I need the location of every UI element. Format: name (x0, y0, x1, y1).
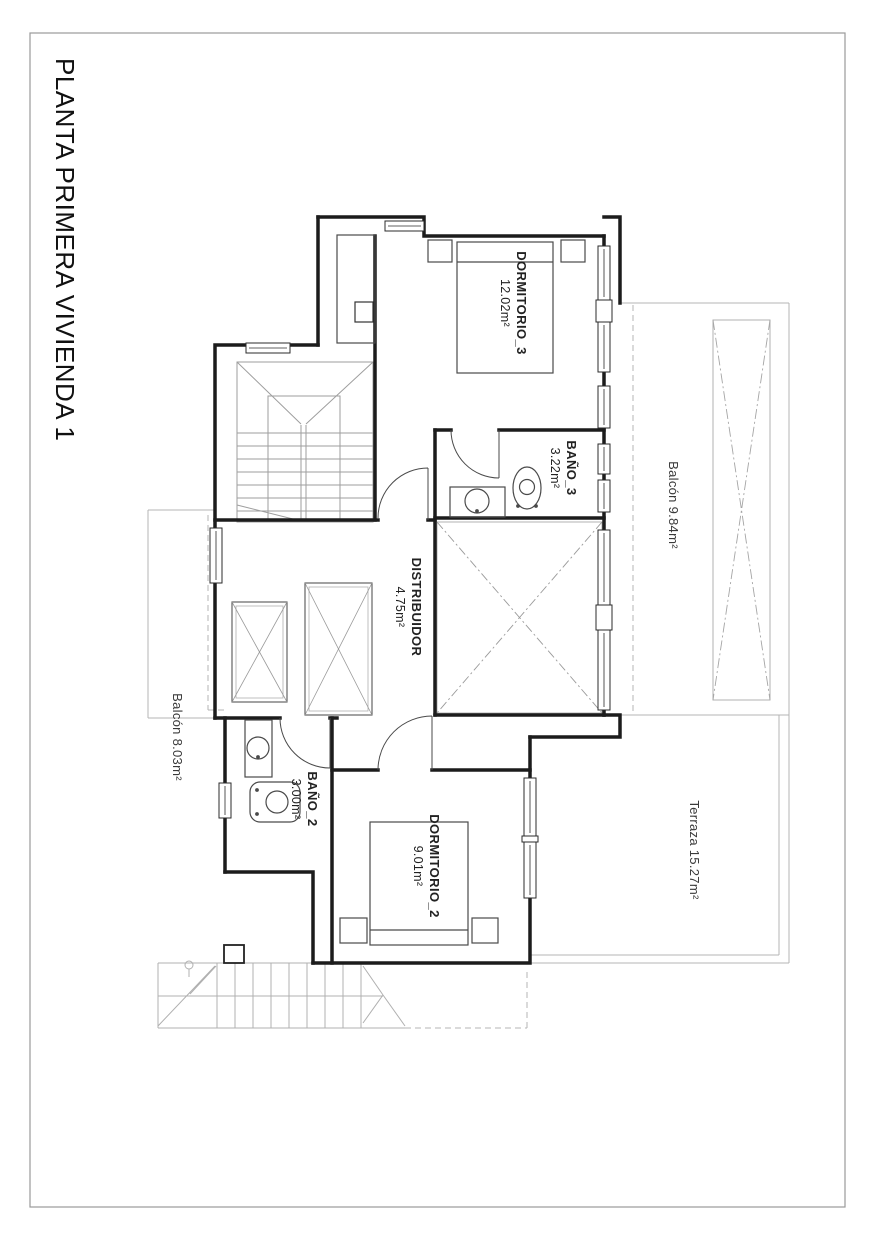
door-group (280, 430, 499, 770)
void-x-marks (437, 522, 602, 713)
label-distribuidor: DISTRIBUIDOR 4.75m² (393, 558, 424, 657)
wall-top (318, 217, 604, 236)
closet-left-x (232, 602, 287, 702)
toilet-bano3-icon (513, 467, 541, 509)
window-mullion-block (596, 300, 612, 322)
skylight-x-marks (713, 320, 770, 700)
interior-stair (237, 362, 373, 522)
room-name: DORMITORIO_2 (427, 814, 442, 918)
nightstand (561, 240, 585, 262)
label-terraza: Terraza 15.27m² (687, 800, 702, 900)
sink-bano2-icon (245, 720, 272, 777)
door-dormitorio3 (378, 468, 428, 520)
balcony-label: Balcón 9.84m² (666, 461, 681, 549)
double-height-void (437, 522, 602, 713)
closet-right (305, 583, 372, 715)
label-balcon-left: Balcón 8.03m² (170, 693, 185, 781)
dashed-projection-group (208, 305, 633, 1028)
door-bano2 (280, 718, 330, 768)
sheet-border (30, 33, 845, 1207)
wall-se-step (530, 715, 620, 737)
nightstand (340, 918, 367, 943)
stair-stringer (301, 425, 306, 522)
page-title: PLANTA PRIMERA VIVIENDA 1 (50, 58, 80, 441)
wall-left (215, 345, 318, 718)
dashed-roof-edge (405, 968, 527, 1028)
door-bano3 (451, 430, 499, 478)
label-bano2: BAÑO_2 3.00m² (289, 771, 320, 826)
sheet-title: PLANTA PRIMERA VIVIENDA 1 (50, 58, 80, 441)
closet-left (232, 602, 287, 702)
window-mullion-block (522, 836, 538, 842)
room-area: 3.22m² (548, 448, 562, 489)
window-mullion-block (596, 605, 612, 630)
nightstand (428, 240, 452, 262)
terrace-label: Terraza 15.27m² (687, 800, 702, 900)
room-name: DORMITORIO_3 (514, 251, 529, 355)
nightstand (472, 918, 498, 943)
label-dormitorio3: DORMITORIO_3 12.02m² (498, 251, 529, 355)
label-balcon-right: Balcón 9.84m² (666, 461, 681, 549)
door-dormitorio2 (378, 716, 432, 770)
downpipe-symbol (185, 961, 193, 969)
chimney-block (224, 945, 244, 963)
exterior-stair (158, 961, 405, 1028)
room-area: 12.02m² (498, 279, 512, 327)
room-area: 3.00m² (289, 779, 303, 820)
room-area: 4.75m² (393, 587, 407, 628)
sink-bano3-icon (450, 487, 505, 517)
room-name: BAÑO_2 (305, 771, 320, 826)
room-area: 9.01m² (411, 846, 425, 887)
label-bano3: BAÑO_3 3.22m² (548, 440, 579, 495)
room-name: DISTRIBUIDOR (409, 558, 424, 657)
closet-right-x (305, 583, 372, 715)
balcony-label: Balcón 8.03m² (170, 693, 185, 781)
stair-treads (237, 433, 373, 511)
balcony-skylight-strip (713, 320, 770, 700)
floor-plan-canvas: PLANTA PRIMERA VIVIENDA 1 (0, 0, 878, 1241)
drawing-sheet: PLANTA PRIMERA VIVIENDA 1 (0, 0, 878, 1241)
stair-winders (237, 362, 373, 521)
room-name: BAÑO_3 (564, 440, 579, 495)
wardrobe-upper-left (337, 235, 375, 343)
label-dormitorio2: DORMITORIO_2 9.01m² (411, 814, 442, 918)
balcony-right-terraza-outline (530, 303, 789, 963)
